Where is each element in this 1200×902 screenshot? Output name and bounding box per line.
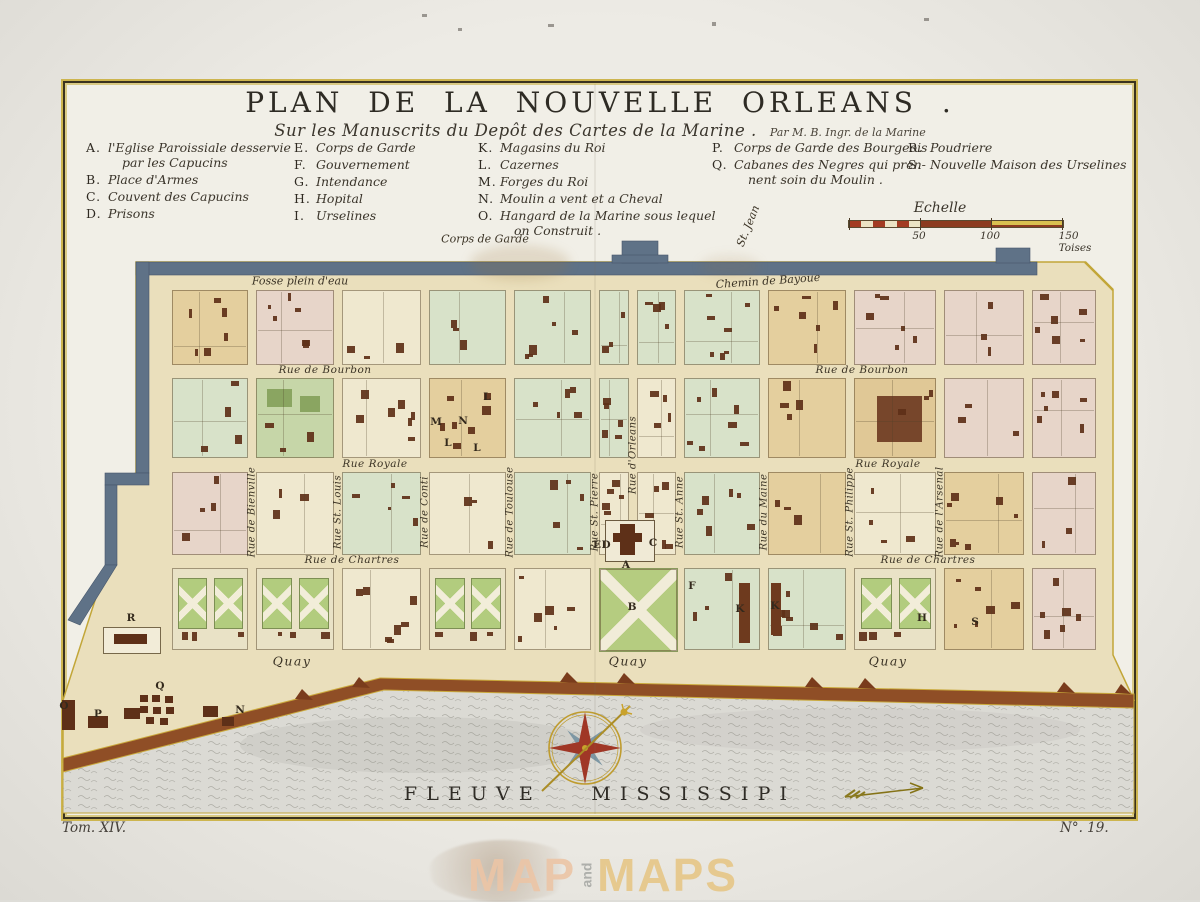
paper-speck: [458, 28, 462, 31]
paper-speck: [712, 22, 716, 26]
scale-segment: [920, 221, 991, 227]
plate-number: N°. 19.: [1060, 820, 1109, 836]
water-shading: [240, 717, 600, 773]
antique-map-page: Corps de GardeFosse plein d'eauChemin de…: [0, 0, 1200, 900]
watermark-and: and: [579, 863, 595, 888]
scale-segment: [849, 221, 920, 227]
water-shading: [640, 708, 1080, 752]
scale-tick-label: 100: [980, 230, 1000, 242]
watermark-map: MAP: [468, 848, 576, 902]
scale-tick-label: 150 Toises: [1059, 230, 1092, 254]
river-name: Fleuve Mississipi: [0, 783, 1200, 805]
scale-segment: [991, 221, 1063, 227]
paper-stain: [700, 255, 760, 277]
scale-bar-graphic: [848, 220, 1064, 228]
paper-speck: [924, 18, 929, 21]
map-attribution: Par M. B. Ingr. de la Marine: [770, 126, 926, 139]
map-title: PLAN DE LA NOUVELLE ORLEANS .: [0, 86, 1200, 119]
scale-title: Echelle: [900, 200, 980, 216]
paper-speck: [422, 14, 427, 17]
paper-crease: [594, 84, 596, 814]
scale-tick-label: 50: [912, 230, 925, 242]
paper-stain: [470, 245, 570, 281]
map-subtitle: Sur les Manuscrits du Depôt des Cartes d…: [274, 121, 757, 140]
watermark-maps: MAPS: [597, 848, 738, 902]
map-subtitle-row: Sur les Manuscrits du Depôt des Cartes d…: [0, 121, 1200, 140]
tome-label: Tom. XIV.: [62, 820, 126, 836]
watermark: MAP and MAPS: [468, 848, 738, 902]
paper-speck: [548, 24, 554, 27]
